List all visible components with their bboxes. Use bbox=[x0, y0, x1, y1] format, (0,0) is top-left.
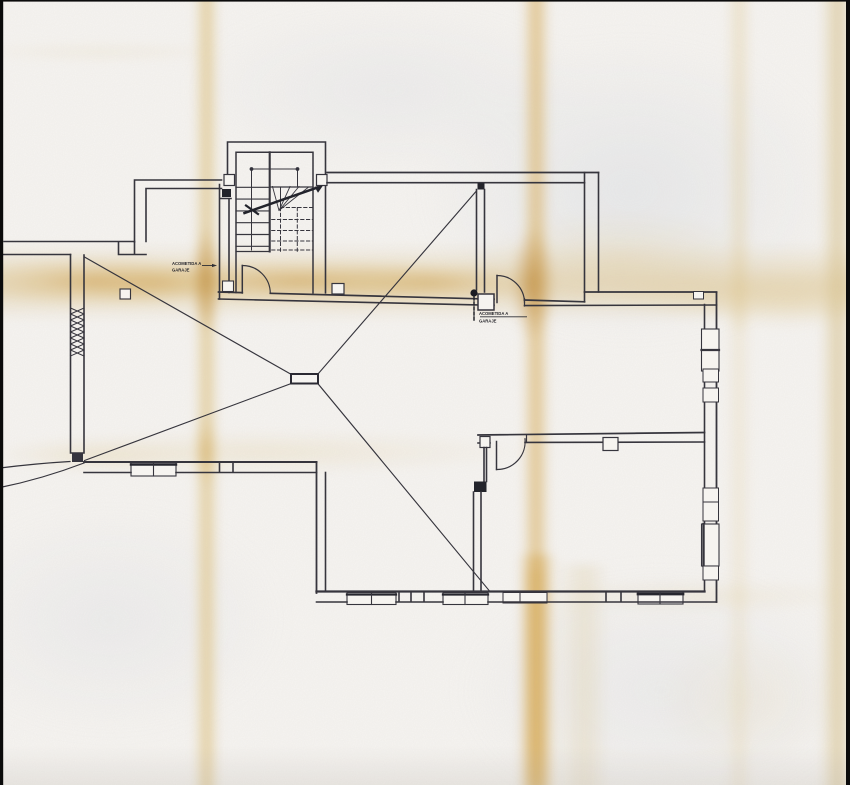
svg-text:ACOMETIDA A: ACOMETIDA A bbox=[172, 261, 201, 266]
svg-text:GARAJE: GARAJE bbox=[479, 319, 497, 324]
svg-text:ACOMETIDA A: ACOMETIDA A bbox=[479, 311, 508, 316]
svg-text:GARAJE: GARAJE bbox=[172, 268, 190, 273]
